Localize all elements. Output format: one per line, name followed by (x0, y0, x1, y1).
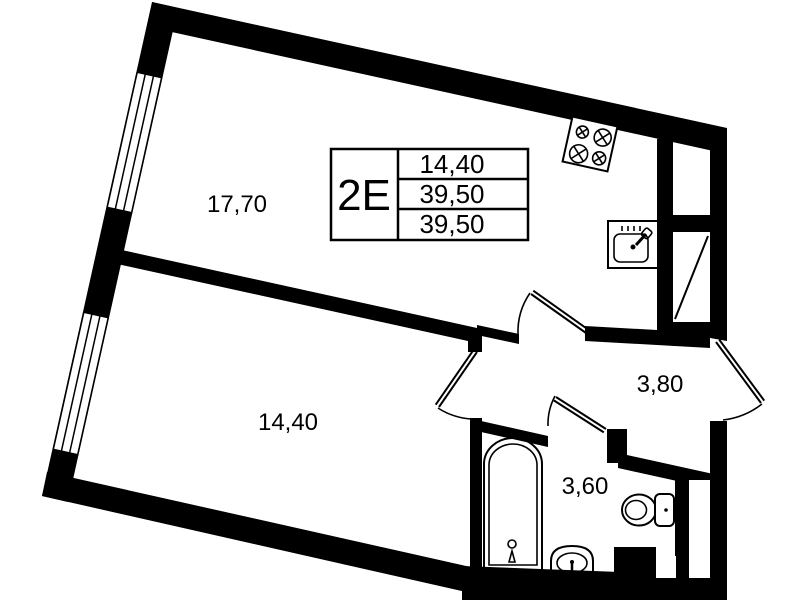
unit-living-area: 14,40 (419, 149, 484, 179)
living-door-arc (518, 293, 530, 334)
bath-floor-notch (656, 556, 676, 578)
unit-total-area-2: 39,50 (419, 209, 484, 239)
living-room-area-label: 17,70 (207, 191, 267, 218)
bedroom-door-leaf2 (436, 350, 474, 405)
living-door-stub-wall (477, 325, 519, 344)
entrance-door-leaf (716, 342, 761, 403)
bathroom-door-leaf2 (554, 400, 604, 432)
rooms-divider-wall (108, 247, 477, 343)
bathroom-door-leaf (556, 397, 606, 429)
entrance-door-leaf2 (719, 340, 764, 401)
bath-bottom-chunk (614, 547, 656, 578)
entrance-door-arc (723, 404, 762, 420)
unit-code: 2E (337, 171, 391, 220)
floorplan-drawing: 2E 14,40 39,50 39,50 17,70 14,40 3,80 3,… (0, 0, 799, 600)
bath-shaft-wall (675, 477, 689, 580)
bathroom-door (548, 396, 606, 432)
kitchen-shaft-wall (657, 139, 673, 345)
window-top (107, 72, 161, 212)
living-door-leaf2 (533, 291, 588, 330)
shaft-bottom-ledge (673, 322, 710, 346)
washbasin-drain (570, 560, 574, 564)
bedroom-door (436, 350, 477, 419)
bedroom-door-leaf (439, 352, 477, 407)
unit-info-table: 2E 14,40 39,50 39,50 (331, 149, 528, 240)
bedroom-bath-wall (470, 418, 482, 578)
entrance-door (716, 340, 764, 420)
right-wall-upper (710, 128, 727, 341)
toilet-icon (622, 494, 674, 526)
hall-area-label: 3,80 (637, 371, 684, 398)
kitchen-fixtures (563, 117, 658, 268)
bathtub-icon (484, 438, 542, 570)
bedroom-area-label: 14,40 (258, 409, 318, 436)
top-wall (152, 2, 727, 154)
living-door-leaf (531, 294, 586, 333)
toilet-button (664, 508, 668, 512)
sink-drain (631, 245, 636, 250)
shaft-top (673, 143, 710, 215)
bath-top-wall (481, 421, 548, 447)
bottom-wall (42, 472, 475, 594)
living-room-door (518, 291, 588, 334)
sink-icon (608, 221, 658, 268)
bathtub-drain (508, 540, 516, 548)
shaft-bottom (689, 480, 710, 578)
bedroom-door-arc (438, 408, 473, 419)
stove-icon (563, 117, 618, 172)
window-bottom (53, 312, 108, 454)
floorplan-page: 2E 14,40 39,50 39,50 17,70 14,40 3,80 3,… (0, 0, 799, 600)
bathtub-drain-stem (509, 551, 515, 562)
unit-total-area: 39,50 (419, 179, 484, 209)
right-wall-lower (710, 421, 727, 600)
shaft-divider-wall (673, 215, 710, 232)
bathroom-area-label: 3,60 (562, 473, 609, 500)
